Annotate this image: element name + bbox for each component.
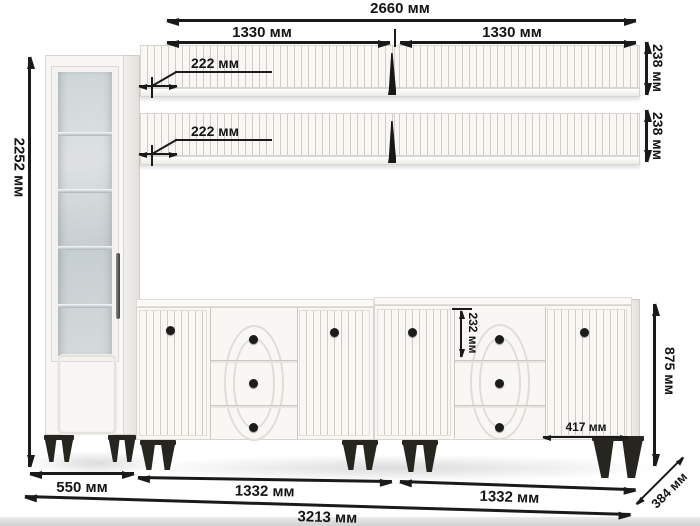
dim-shelf-depth-lower-label: 222 мм bbox=[165, 124, 265, 138]
leg bbox=[622, 439, 643, 478]
drawer-gap bbox=[455, 405, 545, 408]
dim-mid-tick bbox=[394, 29, 396, 47]
drawer-knob bbox=[249, 423, 258, 432]
leader-tick bbox=[151, 145, 153, 166]
cabinet-leg-left bbox=[44, 435, 74, 462]
dim-door-width-label: 417 мм bbox=[545, 421, 627, 433]
dim-drawer-height-label: 232 мм bbox=[467, 307, 479, 359]
leg bbox=[161, 443, 175, 470]
door-knob bbox=[580, 328, 589, 337]
sideboard-left-leg-left bbox=[140, 440, 176, 470]
dim-cabinet-height-label: 2252 мм bbox=[12, 136, 27, 200]
dim-shelf-left-label: 1330 мм bbox=[202, 25, 322, 40]
leg bbox=[343, 443, 357, 470]
dim-shelves-total-arrow bbox=[167, 19, 636, 22]
leader-underline bbox=[175, 139, 272, 141]
dim-drawer-height-arrow bbox=[460, 311, 462, 357]
sideboard-right-leg-left bbox=[402, 440, 438, 472]
dim-shelf-height-upper-label: 238 мм bbox=[651, 40, 665, 96]
sideboard-left-leg-right bbox=[342, 440, 378, 470]
dim-shelf-height-upper-arrow bbox=[645, 42, 648, 95]
leg bbox=[141, 443, 155, 470]
leg bbox=[61, 438, 73, 462]
drawer-knob bbox=[495, 335, 504, 344]
drawer-knob bbox=[495, 379, 504, 388]
sideboard-right bbox=[374, 297, 640, 440]
dim-shelf-right-label: 1330 мм bbox=[452, 25, 572, 40]
leg bbox=[45, 438, 57, 462]
sideboard-top bbox=[374, 297, 632, 305]
leg bbox=[403, 443, 417, 472]
dim-shelf-depth-lower-arrow bbox=[139, 153, 177, 155]
dim-cabinet-width-arrow bbox=[30, 472, 134, 475]
dim-sideboard-right-width-label: 1332 мм bbox=[449, 488, 569, 507]
drawer-knob bbox=[249, 335, 258, 344]
drawer-gap bbox=[211, 405, 297, 408]
door-knob bbox=[166, 326, 175, 335]
glass-shelf bbox=[58, 304, 112, 308]
glass-shelf bbox=[58, 246, 112, 250]
furniture-dimension-diagram: 2660 мм 1330 мм 1330 мм 222 мм 222 мм 23… bbox=[0, 0, 700, 526]
dim-sideboard-left-width-label: 1332 мм bbox=[205, 483, 325, 500]
cabinet-lower-panel bbox=[58, 355, 116, 434]
dim-door-width-arrow bbox=[543, 436, 628, 438]
dim-shelf-height-lower-arrow bbox=[645, 110, 648, 162]
dim-shelf-depth-upper-label: 222 мм bbox=[165, 56, 265, 70]
dim-sideboard-height-label: 875 мм bbox=[663, 343, 677, 399]
cabinet-leg-right bbox=[108, 435, 136, 462]
door-handle bbox=[116, 253, 120, 319]
sideboard-right-leg-right bbox=[592, 436, 644, 478]
leg bbox=[363, 443, 377, 470]
glass-door bbox=[58, 72, 112, 356]
leg bbox=[423, 443, 437, 472]
door-knob bbox=[408, 328, 417, 337]
drawer-knob bbox=[249, 379, 258, 388]
leg bbox=[109, 438, 120, 462]
dim-shelf-right-arrow bbox=[400, 41, 636, 44]
display-cabinet bbox=[45, 55, 140, 435]
glass-shelf bbox=[58, 189, 112, 193]
leg bbox=[593, 439, 614, 478]
dim-set-total-width-label: 3213 мм bbox=[252, 508, 402, 526]
dim-shelf-left-arrow bbox=[167, 41, 390, 44]
dim-shelf-height-lower-label: 238 мм bbox=[651, 108, 665, 164]
drawer-gap bbox=[455, 360, 545, 363]
dim-cabinet-width-label: 550 мм bbox=[32, 480, 132, 495]
dim-cabinet-height-arrow bbox=[28, 57, 31, 467]
drawer-gap bbox=[211, 360, 297, 363]
glass-shelf bbox=[58, 132, 112, 136]
sideboard-top bbox=[136, 299, 374, 307]
drawer-stack bbox=[210, 308, 298, 439]
dim-sideboard-height-arrow bbox=[653, 304, 656, 466]
leader-underline bbox=[175, 71, 272, 73]
leader-tick bbox=[151, 77, 153, 98]
door-knob bbox=[330, 328, 339, 337]
leg bbox=[124, 438, 135, 462]
drawer-knob bbox=[495, 423, 504, 432]
sideboard-left bbox=[136, 299, 374, 440]
dim-shelves-total-label: 2660 мм bbox=[335, 1, 465, 16]
dim-shelf-depth-upper-arrow bbox=[139, 85, 177, 87]
